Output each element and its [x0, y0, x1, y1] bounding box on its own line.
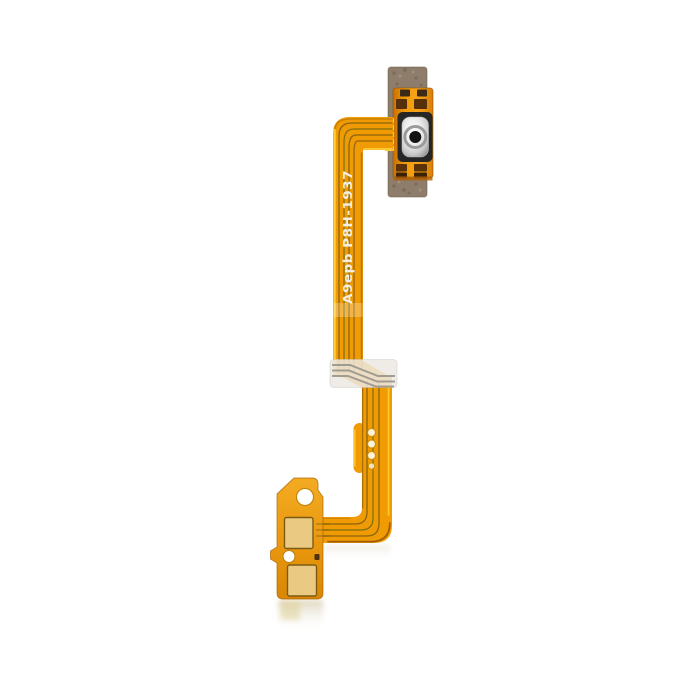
- ribbon-sheen: [334, 303, 363, 317]
- switch-center: [409, 131, 421, 143]
- mounting-hole: [283, 551, 295, 563]
- product-photo: A9epb P8H-1937: [0, 0, 700, 700]
- ribbon-marking-text: A9epb P8H-1937: [340, 170, 355, 304]
- pad-top-nub: [400, 90, 410, 97]
- contact-pad: [285, 518, 314, 549]
- connector-end: [271, 478, 331, 599]
- connector-mark: [315, 554, 320, 560]
- flex-ribbon: [318, 117, 393, 543]
- solder-pad: [396, 99, 407, 109]
- mounting-hole: [297, 489, 314, 506]
- flex-cable-photo: A9epb P8H-1937: [0, 0, 700, 700]
- dome-switch: [398, 112, 433, 162]
- pad-top-nub: [417, 90, 427, 97]
- solder-pad: [396, 164, 407, 172]
- contact-pad: [288, 565, 317, 596]
- stiffener-patch: [330, 360, 397, 388]
- pad-bottom-edge: [394, 177, 433, 181]
- solder-pad: [414, 99, 427, 109]
- solder-pad: [414, 164, 427, 172]
